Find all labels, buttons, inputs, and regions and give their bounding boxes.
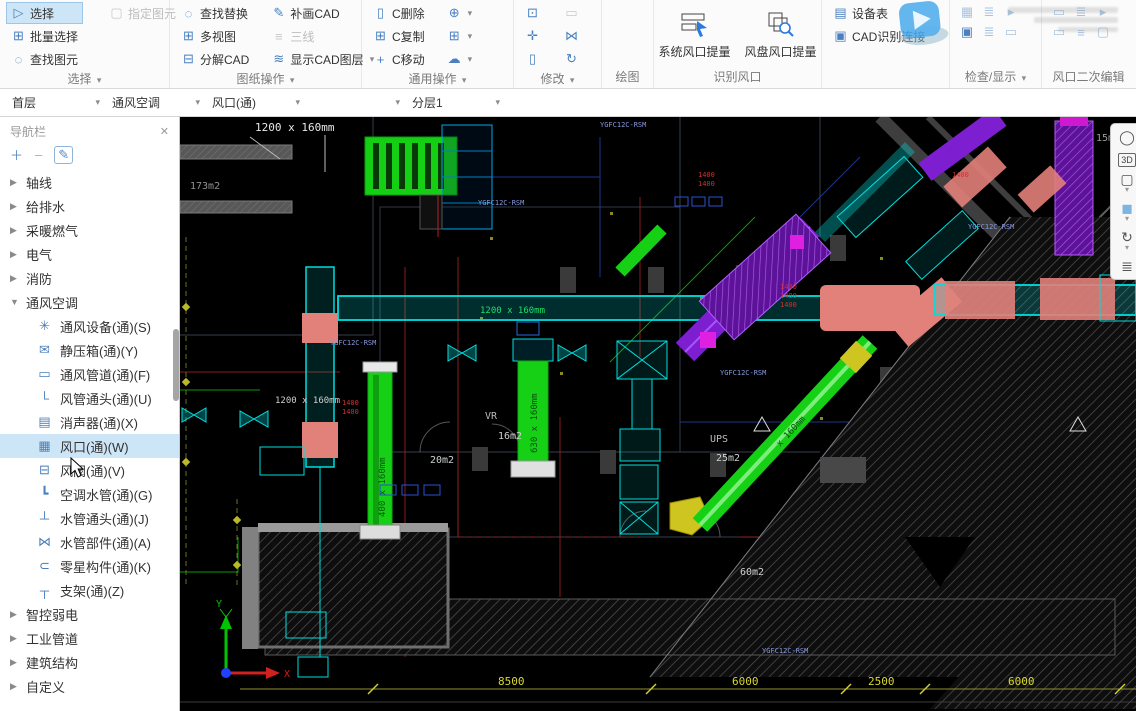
list-icon[interactable]: ≣ (982, 24, 997, 40)
tree-label: 通风管道(通)(F) (60, 365, 150, 384)
discipline-dropdown[interactable]: 通风空调▾ (106, 94, 206, 111)
svg-text:YGFC12C-RSM: YGFC12C-RSM (478, 199, 524, 207)
group-label-drawing-ops[interactable]: 图纸操作 ▾ (170, 70, 361, 89)
group-label-check-display[interactable]: 检查/显示 ▾ (950, 68, 1041, 88)
chevron-right-icon: ▶ (10, 225, 19, 236)
main-area: 导航栏 ✕ ＋ – ✎ ▶轴线 ▶给排水 ▶采暖燃气 ▶电气 ▶消防 ▼通风空调… (0, 117, 1136, 711)
tree-item-ac-water-pipe[interactable]: ┗空调水管(通)(G) (0, 482, 179, 506)
modify-delete-button[interactable]: ▯ (520, 48, 545, 70)
find-element-button[interactable]: ◌查找图元 (6, 48, 83, 70)
svg-text:1400: 1400 (698, 171, 715, 179)
chevron-down-icon: ▾ (462, 75, 467, 85)
c-delete-label: C删除 (392, 5, 425, 22)
element-type-value: 风口(通) (212, 94, 256, 111)
ribbon-group-outlet-edit: ▭ ≣ ▸ ▭ ≡ ▢ 风口二次编辑 (1042, 0, 1135, 88)
find-replace-label: 查找替换 (200, 5, 248, 22)
tree-item-plumbing[interactable]: ▶给排水 (0, 194, 179, 218)
rotate-button[interactable]: ↻ (559, 48, 584, 70)
fan-icon: ✳ (36, 318, 53, 334)
envelope-icon: ✉ (36, 342, 53, 358)
ribbon-group-drawing-ops: ◌查找替换 ⊞多视图 ⊟分解CAD ✎补画CAD ≡三线 ≋显示CAD图层▾ 图… (170, 0, 362, 88)
chevron-down-icon: ▾ (468, 54, 473, 65)
cad-recognize-label: CAD识别连接 (852, 28, 925, 45)
copy-icon: ⊞ (373, 28, 388, 44)
view-3d-button[interactable]: 3D (1118, 151, 1136, 165)
group-label-modify[interactable]: 修改 ▾ (514, 70, 601, 89)
close-icon[interactable]: ✕ (160, 125, 169, 138)
duct-size-label: 1200 x 160mm (480, 306, 545, 316)
svg-text:1400: 1400 (780, 283, 797, 291)
svg-text:YGFC12C-RSM: YGFC12C-RSM (600, 121, 646, 129)
tee-icon: ┴ (36, 511, 53, 526)
pick-element-label: 指定图元 (128, 5, 176, 22)
chevron-down-icon: ▾ (468, 8, 473, 19)
ribbon-group-device: ▤设备表 ▣CAD识别连接 (822, 0, 950, 88)
batch-select-button[interactable]: ⊞批量选择 (6, 25, 83, 47)
group-label-outlet-edit[interactable]: 风口二次编辑 (1042, 68, 1135, 88)
chevron-right-icon: ▶ (10, 273, 19, 284)
layers-icon: ≋ (271, 51, 286, 67)
tree-item-air-outlet[interactable]: ▦风口(通)(W) (0, 434, 179, 458)
chevron-down-icon: ▾ (495, 97, 500, 108)
list-icon[interactable]: ≣ (1074, 4, 1089, 20)
table-icon: ▤ (833, 5, 848, 21)
tree-item-duct-fitting[interactable]: └风管通头(通)(U) (0, 386, 179, 410)
fan-coil-outlet-takeoff-button[interactable]: 风盘风口提量 (740, 2, 822, 68)
cad-canvas[interactable]: 173m2 (180, 117, 1136, 711)
tree-item-support[interactable]: ┬支架(通)(Z) (0, 578, 179, 602)
move-icon: + (373, 52, 388, 67)
box-icon[interactable]: ▢ (1096, 24, 1111, 40)
system-outlet-icon (680, 11, 708, 40)
dashed-box-icon[interactable]: ▭ (1052, 4, 1067, 20)
nav-title: 导航栏 (10, 123, 46, 140)
check-icon[interactable]: ▦ (960, 4, 975, 20)
chevron-right-icon: ▶ (10, 201, 19, 212)
view-toolbar: ◯ 3D ▢▾ ◼▾ ↻▾ ≣ (1110, 123, 1136, 280)
copy-icon: ⊡ (525, 5, 540, 21)
svg-text:YGFC12C-RSM: YGFC12C-RSM (762, 647, 808, 655)
tree-label: 水管通头(通)(J) (60, 509, 149, 528)
svg-text:1400: 1400 (342, 399, 359, 407)
tree-item-plenum-box[interactable]: ✉静压箱(通)(Y) (0, 338, 179, 362)
tree-item-heating-gas[interactable]: ▶采暖燃气 (0, 218, 179, 242)
lines-icon[interactable]: ≡ (1074, 25, 1089, 40)
explode-cad-label: 分解CAD (200, 51, 249, 68)
tree-label: 支架(通)(Z) (60, 581, 124, 600)
mirror-icon: ⋈ (564, 28, 579, 44)
svg-text:2500: 2500 (868, 675, 895, 688)
svg-text:6000: 6000 (732, 675, 759, 688)
tree-label: 智控弱电 (26, 605, 78, 624)
c-delete-button[interactable]: ▯C删除 (368, 2, 430, 24)
chevron-down-icon: ▾ (1022, 73, 1027, 83)
svg-text:16m2: 16m2 (498, 431, 522, 442)
pencil-icon: ✎ (271, 5, 286, 21)
chevron-right-icon: ▶ (10, 249, 19, 260)
sketch-view-button[interactable]: ◯ (1119, 130, 1135, 144)
component-icon: ⊂ (36, 558, 53, 574)
ribbon: ▷选择 ⊞批量选择 ◌查找图元 ▢指定图元 选择 ▾ ◌查找替换 ⊞多视图 ⊟分… (0, 0, 1136, 89)
ribbon-group-select: ▷选择 ⊞批量选择 ◌查找图元 ▢指定图元 选择 ▾ (0, 0, 170, 88)
ribbon-group-common-ops: ▯C删除 ⊞C复制 +C移动 ⊕▾ ⊞▾ ☁▾ 通用操作 ▾ (362, 0, 514, 88)
elbow-icon: └ (36, 391, 53, 406)
view-settings-button[interactable]: ≣ (1121, 259, 1133, 273)
tree-label: 风阀(通)(V) (60, 461, 125, 480)
show-cad-layer-label: 显示CAD图层 (290, 51, 363, 68)
c-move-button[interactable]: +C移动 (368, 48, 430, 70)
select-label: 选择 (30, 5, 54, 22)
tree-item-axis[interactable]: ▶轴线 (0, 170, 179, 194)
edit-icon[interactable]: ✎ (54, 146, 73, 164)
batch-select-label: 批量选择 (30, 28, 78, 45)
axis-y-label: Y (216, 599, 222, 610)
floor-value: 首层 (12, 94, 36, 111)
chevron-down-icon: ▾ (95, 97, 100, 108)
list-icon[interactable]: ≣ (982, 4, 997, 20)
tree-label: 零星构件(通)(K) (60, 557, 151, 576)
explode-icon: ⊟ (181, 51, 196, 67)
tree-item-pipe-part[interactable]: ⋈水管部件(通)(A) (0, 530, 179, 554)
cloud-icon: ☁ (447, 51, 462, 67)
tree-item-misc-component[interactable]: ⊂零星构件(通)(K) (0, 554, 179, 578)
pipe-icon: ┗ (36, 486, 53, 502)
tree-item-vent-equipment[interactable]: ✳通风设备(通)(S) (0, 314, 179, 338)
duct-size-label: 630 x 160mm (530, 393, 540, 453)
chevron-right-icon: ▶ (10, 657, 19, 668)
tree-item-hvac[interactable]: ▼通风空调 (0, 290, 179, 314)
svg-text:YGFC12C-RSM: YGFC12C-RSM (330, 339, 376, 347)
modify-move-button[interactable]: ✛ (520, 25, 545, 47)
device-table-label: 设备表 (852, 5, 888, 22)
ribbon-group-modify: ⊡ ✛ ▯ ▭ ⋈ ↻ 修改 ▾ (514, 0, 602, 88)
svg-text:1400: 1400 (698, 180, 715, 188)
tree-item-smart-low-voltage[interactable]: ▶智控弱电 (0, 602, 179, 626)
navigation-sidebar: 导航栏 ✕ ＋ – ✎ ▶轴线 ▶给排水 ▶采暖燃气 ▶电气 ▶消防 ▼通风空调… (0, 117, 180, 711)
svg-text:6000: 6000 (1008, 675, 1035, 688)
tree-label: 风管通头(通)(U) (60, 389, 152, 408)
svg-text:UPS: UPS (710, 434, 728, 445)
tree-label: 建筑结构 (26, 653, 78, 672)
tree-item-damper[interactable]: ⊟风阀(通)(V) (0, 458, 179, 482)
layout-icon: ⊞ (447, 28, 462, 44)
grille-icon: ▦ (36, 438, 53, 454)
discipline-value: 通风空调 (112, 94, 160, 111)
group-label-common-ops[interactable]: 通用操作 ▾ (362, 70, 513, 89)
tree-label: 工业管道 (26, 629, 78, 648)
box-icon[interactable]: ▭ (1004, 24, 1019, 40)
arrow-icon: ▸ (1004, 4, 1019, 20)
ribbon-group-check-display: ▦ ≣ ▸ ▣ ≣ ▭ 检查/显示 ▾ (950, 0, 1042, 88)
tree-item-custom[interactable]: ▶自定义 (0, 674, 179, 698)
tree-item-electrical[interactable]: ▶电气 (0, 242, 179, 266)
navigation-tree: ▶轴线 ▶给排水 ▶采暖燃气 ▶电气 ▶消防 ▼通风空调 ✳通风设备(通)(S)… (0, 170, 179, 698)
chevron-right-icon: ▶ (10, 633, 19, 644)
system-outlet-label: 系统风口提量 (658, 43, 730, 60)
chevron-right-icon: ▶ (10, 681, 19, 692)
chevron-down-icon: ▾ (290, 75, 295, 85)
svg-text:1400: 1400 (342, 408, 359, 416)
chevron-down-icon: ▾ (195, 97, 200, 108)
silencer-icon: ▤ (36, 414, 53, 430)
tree-item-vent-duct[interactable]: ▭通风管道(通)(F) (0, 362, 179, 386)
pointer-icon: ▷ (11, 5, 26, 21)
add-icon[interactable]: ＋ (10, 145, 23, 164)
svg-text:8500: 8500 (498, 675, 525, 688)
find-replace-icon: ◌ (181, 6, 196, 21)
explode-cad-button[interactable]: ⊟分解CAD (176, 48, 254, 70)
select-button[interactable]: ▷选择 (6, 2, 83, 24)
delete-icon: ▯ (373, 5, 388, 21)
valve-icon: ⋈ (36, 534, 53, 550)
layout-dropdown-button[interactable]: ⊞▾ (442, 25, 478, 47)
c-copy-label: C复制 (392, 28, 425, 45)
c-move-label: C移动 (392, 51, 425, 68)
three-line-label: 三线 (290, 28, 314, 45)
dimension-tooltip: 1200 x 160mm (255, 121, 335, 134)
layer-bar: 首层▾ 通风空调▾ 风口(通)▾ ▾ 分层1▾ (0, 89, 1136, 117)
svg-text:25m2: 25m2 (716, 453, 740, 464)
rotate-icon: ↻ (564, 51, 579, 67)
ribbon-group-recognize-outlet: 系统风口提量 风盘风口提量 识别风口 (654, 0, 822, 88)
copy-icon: ⊕ (447, 5, 462, 21)
room-label: 173m2 (190, 181, 220, 192)
chevron-down-icon: ▾ (395, 97, 400, 108)
mirror-button[interactable]: ⋈ (559, 25, 584, 47)
tree-label: 通风设备(通)(S) (60, 317, 151, 336)
modify-copy-button[interactable]: ⊡ (520, 2, 545, 24)
element-type-dropdown[interactable]: 风口(通)▾ (206, 94, 306, 111)
tree-item-fire[interactable]: ▶消防 (0, 266, 179, 290)
tree-label: 电气 (26, 245, 52, 264)
batch-icon: ⊞ (11, 28, 26, 44)
chevron-down-icon: ▾ (295, 97, 300, 108)
find-element-label: 查找图元 (30, 51, 78, 68)
group-label-device (822, 68, 949, 88)
tree-label: 空调水管(通)(G) (60, 485, 152, 504)
chevron-right-icon: ▶ (10, 177, 19, 188)
move-icon: ✛ (525, 28, 540, 44)
tree-label: 自定义 (26, 677, 65, 696)
svg-text:60m2: 60m2 (740, 567, 764, 578)
tree-label: 给排水 (26, 197, 65, 216)
layering-dropdown[interactable]: 分层1▾ (406, 94, 506, 111)
tree-item-structure[interactable]: ▶建筑结构 (0, 650, 179, 674)
chevron-down-icon: ▾ (468, 31, 473, 42)
box-icon: ▭ (564, 5, 579, 21)
empty-dropdown[interactable]: ▾ (306, 97, 406, 108)
cloud-dropdown-button[interactable]: ☁▾ (442, 48, 478, 70)
arrow-icon: ▸ (1096, 4, 1111, 20)
tree-label: 采暖燃气 (26, 221, 78, 240)
box-icon[interactable]: ▭ (1052, 24, 1067, 40)
ribbon-group-draw: 绘图 (602, 0, 654, 88)
duct-icon: ▭ (36, 366, 53, 382)
multi-view-label: 多视图 (200, 28, 236, 45)
tree-label: 风口(通)(W) (60, 437, 129, 456)
layering-value: 分层1 (412, 94, 443, 111)
chevron-right-icon: ▶ (10, 609, 19, 620)
fan-coil-outlet-label: 风盘风口提量 (745, 43, 817, 60)
svg-text:1400: 1400 (780, 292, 797, 300)
green-duct-b: 630 x 160mm (511, 322, 555, 477)
tree-item-industrial-pipe[interactable]: ▶工业管道 (0, 626, 179, 650)
tree-item-pipe-fitting[interactable]: ┴水管通头(通)(J) (0, 506, 179, 530)
cad-icon: ▣ (833, 28, 848, 44)
group-label-select[interactable]: 选择 ▾ (0, 70, 169, 89)
lines-icon: ≡ (271, 29, 286, 44)
pick-icon: ▢ (109, 5, 124, 21)
svg-text:VR: VR (485, 411, 498, 422)
tree-label: 消声器(通)(X) (60, 413, 138, 432)
chevron-down-icon: ▼ (10, 297, 19, 307)
fan-coil-outlet-icon (767, 11, 795, 40)
svg-text:YGFC12C-RSM: YGFC12C-RSM (720, 369, 766, 377)
collapse-icon[interactable]: – (35, 147, 42, 162)
trash-icon: ▯ (525, 51, 540, 67)
find-icon: ◌ (11, 52, 26, 67)
find-replace-button[interactable]: ◌查找替换 (176, 2, 254, 24)
orbit-button[interactable]: ↻▾ (1121, 230, 1133, 252)
chevron-down-icon: ▾ (570, 75, 575, 85)
tree-item-silencer[interactable]: ▤消声器(通)(X) (0, 410, 179, 434)
tree-label: 通风空调 (26, 293, 78, 312)
patch-cad-label: 补画CAD (290, 5, 339, 22)
group-label-recognize-outlet[interactable]: 识别风口 (654, 68, 821, 88)
tree-label: 水管部件(通)(A) (60, 533, 151, 552)
damper-icon: ⊟ (36, 462, 53, 478)
svg-text:1400: 1400 (952, 171, 969, 179)
group-label-draw[interactable]: 绘图 (602, 68, 653, 88)
floor-dropdown[interactable]: 首层▾ (6, 94, 106, 111)
dimension-note: 1200 x 160mm (275, 396, 340, 406)
sidebar-scrollbar[interactable] (173, 329, 179, 401)
svg-text:1400: 1400 (780, 301, 797, 309)
tree-label: 静压箱(通)(Y) (60, 341, 138, 360)
axis-x-label: X (284, 669, 290, 680)
system-outlet-takeoff-button[interactable]: 系统风口提量 (653, 2, 735, 68)
device-table-button[interactable]: ▤设备表 (828, 2, 930, 24)
c-copy-button[interactable]: ⊞C复制 (368, 25, 430, 47)
modify-extra-button-disabled: ▭ (559, 2, 584, 24)
shaded-view-button[interactable]: ◼▾ (1121, 201, 1133, 223)
support-icon: ┬ (36, 583, 53, 598)
copy-dropdown-button[interactable]: ⊕▾ (442, 2, 478, 24)
cad-recognize-button[interactable]: ▣CAD识别连接 (828, 25, 930, 47)
svg-text:YGFC12C-RSM: YGFC12C-RSM (968, 223, 1014, 231)
display-search-icon[interactable]: ▣ (960, 24, 975, 40)
chevron-down-icon: ▾ (97, 75, 102, 85)
tree-label: 消防 (26, 269, 52, 288)
multi-view-icon: ⊞ (181, 28, 196, 44)
tree-label: 轴线 (26, 173, 52, 192)
multi-view-button[interactable]: ⊞多视图 (176, 25, 254, 47)
wireframe-view-button[interactable]: ▢▾ (1120, 172, 1133, 194)
svg-text:20m2: 20m2 (430, 455, 454, 466)
